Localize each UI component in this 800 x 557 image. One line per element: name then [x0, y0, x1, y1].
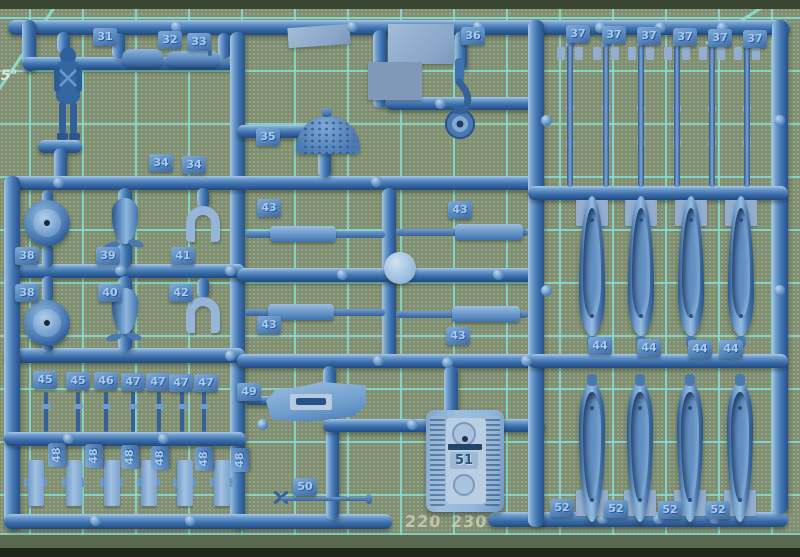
- part-number-tag-37: 37: [708, 29, 732, 47]
- bomb-half-part: [624, 372, 656, 532]
- ejector-pin-mark: [63, 433, 74, 444]
- flat-strip-part: [28, 460, 44, 506]
- ejector-pin-mark: [774, 115, 785, 126]
- wheel-hub-hole: [42, 218, 52, 228]
- locating-pin-hole: [590, 314, 594, 318]
- sprue-runner: [42, 244, 53, 268]
- rod-side-tab: [682, 47, 690, 60]
- part-number-tag-48: 48: [231, 448, 249, 472]
- rod-side-tab: [575, 47, 583, 60]
- part-number-tag-45: 45: [33, 371, 57, 389]
- rod-side-tab: [752, 47, 760, 60]
- part-number-tag-46: 46: [94, 372, 118, 390]
- bar-part: [452, 306, 520, 322]
- part-number-tag-43: 43: [448, 201, 472, 219]
- ejector-pin-mark: [225, 350, 236, 361]
- sprue-runner: [197, 188, 209, 208]
- part-number-tag-47: 47: [194, 374, 218, 392]
- bomb-half-part: [625, 196, 657, 356]
- part-number-tag-52: 52: [706, 501, 730, 519]
- sprue-runner: [4, 176, 544, 190]
- thin-rod-part: [638, 45, 644, 187]
- small-barrel-part: [44, 392, 48, 432]
- ruler-number: 230: [450, 512, 488, 531]
- part-number-tag-37: 37: [673, 28, 697, 46]
- part-number-tag-41: 41: [171, 247, 195, 265]
- part-number-tag-36: 36: [461, 27, 485, 45]
- locating-pin-hole: [739, 314, 743, 318]
- tub-circle-detail: [453, 474, 475, 496]
- thin-rod-part: [744, 45, 750, 187]
- ejector-pin-mark: [53, 177, 64, 188]
- barrel-detail-nub: [102, 404, 111, 409]
- part-number-tag-37: 37: [637, 27, 661, 45]
- ejector-pin-mark: [541, 285, 552, 296]
- ejector-pin-mark: [225, 265, 236, 276]
- ejector-pin-mark: [257, 419, 268, 430]
- part-number-tag-44: 44: [688, 340, 712, 358]
- dome-knob: [322, 108, 332, 117]
- ejector-pin-mark: [435, 98, 446, 109]
- part-number-tag-48: 48: [48, 443, 66, 467]
- locating-pin-hole: [738, 498, 742, 502]
- part-number-tag-52: 52: [604, 500, 628, 518]
- sprue-gate: [587, 374, 597, 386]
- part-number-tag-34: 34: [149, 154, 173, 172]
- ejector-pin-mark: [158, 433, 169, 444]
- ejector-pin-mark: [185, 515, 196, 526]
- part-number-tag-44: 44: [588, 337, 612, 355]
- barrel-detail-nub: [178, 404, 187, 409]
- sprue-runner: [326, 428, 339, 520]
- barrel-detail-nub: [200, 404, 209, 409]
- small-barrel-part: [76, 392, 80, 432]
- part-number-tag-38: 38: [15, 247, 39, 265]
- flat-strip-part: [66, 460, 82, 506]
- part-number-tag-48: 48: [85, 444, 103, 468]
- locating-pin-hole: [689, 218, 693, 222]
- locating-pin-hole: [638, 406, 642, 410]
- ejector-pin-mark: [90, 515, 101, 526]
- sprue-runner: [42, 276, 53, 302]
- standing-figure-part: [50, 46, 86, 142]
- small-barrel-part: [202, 392, 206, 432]
- barrel-detail-nub: [42, 404, 51, 409]
- tub-dot-detail: [462, 436, 468, 442]
- small-barrel-part: [131, 392, 135, 432]
- rod-side-tab: [664, 47, 672, 60]
- rod-side-tab: [717, 47, 725, 60]
- locating-pin-hole: [688, 406, 692, 410]
- part-number-tag-43: 43: [446, 327, 470, 345]
- sprue-runner: [772, 20, 788, 514]
- locating-pin-hole: [688, 498, 692, 502]
- tub-slot-detail: [448, 444, 482, 450]
- part-number-tag-45: 45: [66, 372, 90, 390]
- cockpit-tub-part: 51: [426, 410, 504, 512]
- ejector-pin-mark: [371, 176, 382, 187]
- rod-side-tab: [557, 47, 565, 60]
- part-number-tag-37: 37: [743, 30, 767, 48]
- mat-bottom-edge: [0, 535, 800, 548]
- ejector-pin-mark: [442, 357, 453, 368]
- thin-rod-part: [567, 45, 573, 187]
- barrel-detail-nub: [155, 404, 164, 409]
- locating-pin-hole: [639, 314, 643, 318]
- mat-angle-label: 45°: [0, 68, 17, 84]
- ejector-pin-mark: [115, 265, 126, 276]
- part-number-tag-47: 47: [169, 374, 193, 392]
- seat-dome-part: [296, 116, 360, 154]
- rod-end-nub: [366, 494, 372, 504]
- part-number-tag-43: 43: [257, 316, 281, 334]
- part-number-tag-38: 38: [15, 284, 39, 302]
- part-number-tag-34: 34: [182, 156, 206, 174]
- rod-side-tab: [593, 47, 601, 60]
- tub-circle-detail: [452, 422, 476, 446]
- rod-side-tab: [734, 47, 742, 60]
- ejector-pin-mark: [493, 269, 504, 280]
- ejector-pin-mark: [347, 21, 358, 32]
- part-number-tag-39: 39: [96, 247, 120, 265]
- mat-top-edge: [0, 0, 800, 9]
- sprue-runner: [197, 278, 209, 298]
- sprue-gate: [685, 374, 695, 386]
- part-number-tag-31: 31: [93, 28, 117, 46]
- rod-side-tab: [646, 47, 654, 60]
- hook-pulley-part: [440, 58, 480, 146]
- sprue-runner: [4, 176, 20, 530]
- sprue-runner: [237, 354, 539, 368]
- sprue-runner: [218, 33, 230, 59]
- rod-side-tab: [628, 47, 636, 60]
- locating-pin-hole: [738, 406, 742, 410]
- small-barrel-part: [180, 392, 184, 432]
- barrel-detail-nub: [74, 404, 83, 409]
- photo-model-kit-sprue-on-cutting-mat: 45° 02202302402: [0, 0, 800, 557]
- bar-part: [270, 226, 336, 242]
- part-number-tag-48: 48: [195, 447, 213, 471]
- part-number-tag-50: 50: [293, 478, 317, 496]
- towing-rod-part: [281, 497, 369, 501]
- ejector-pin-mark: [373, 355, 384, 366]
- ejector-pin-mark: [407, 419, 418, 430]
- sprue-gate: [735, 374, 745, 386]
- part-number-tag-47: 47: [121, 373, 145, 391]
- part-number-tag-47: 47: [146, 373, 170, 391]
- round-disc-part: [384, 252, 416, 284]
- part-number-tag-32: 32: [158, 31, 182, 49]
- gun-breech-slot: [296, 398, 326, 405]
- flat-strip-part: [177, 460, 193, 506]
- bomb-half-part: [725, 196, 757, 356]
- small-barrel-part: [157, 392, 161, 432]
- part-number-tag-37: 37: [566, 25, 590, 43]
- horseshoe-clamp-part: [186, 206, 220, 242]
- ejector-pin-mark: [774, 285, 785, 296]
- wheel-part: [24, 300, 70, 346]
- part-number-tag-48: 48: [121, 445, 139, 469]
- part-number-tag-43: 43: [257, 199, 281, 217]
- bomb-half-part: [675, 196, 707, 356]
- locating-pin-hole: [590, 498, 594, 502]
- part-number-tag-44: 44: [637, 339, 661, 357]
- part-number-tag-37: 37: [602, 26, 626, 44]
- flat-strip-part: [104, 460, 120, 506]
- wheel-hub-hole: [42, 318, 52, 328]
- locating-pin-hole: [590, 406, 594, 410]
- ejector-pin-mark: [541, 115, 552, 126]
- ruler-number: 220: [404, 512, 442, 531]
- ejector-pin-mark: [337, 269, 348, 280]
- small-barrel-part: [104, 392, 108, 432]
- horseshoe-clamp-part: [186, 297, 220, 333]
- thin-rod-part: [603, 45, 609, 187]
- mat-bottom-shadow: [0, 548, 800, 557]
- rod-side-tab: [699, 47, 707, 60]
- part-number-tag-48: 48: [151, 446, 169, 470]
- flat-strip-part: [214, 460, 230, 506]
- locating-pin-hole: [638, 498, 642, 502]
- rod-side-tab: [611, 47, 619, 60]
- wheel-part: [24, 200, 70, 246]
- locating-pin-hole: [639, 218, 643, 222]
- part-number-tag-52: 52: [550, 499, 574, 517]
- bar-part: [455, 224, 523, 240]
- sprue-gate: [635, 374, 645, 386]
- barrel-detail-nub: [129, 404, 138, 409]
- flat-panel-part: [368, 62, 422, 100]
- part-number-tag-40: 40: [98, 284, 122, 302]
- locating-pin-hole: [739, 218, 743, 222]
- tub-rib-texture: [430, 416, 445, 506]
- sprue-runner: [4, 432, 246, 446]
- locating-pin-hole: [590, 218, 594, 222]
- part-number-tag-33: 33: [187, 33, 211, 51]
- sprue-runner: [528, 20, 544, 527]
- tub-rib-texture: [485, 416, 500, 506]
- part-number-tag-44: 44: [719, 340, 743, 358]
- thin-rod-part: [709, 45, 715, 187]
- fuel-tank-part: [122, 49, 164, 67]
- part-number-tag-49: 49: [237, 383, 261, 401]
- embossed-part-number: 51: [450, 452, 478, 469]
- bomb-half-part: [576, 196, 608, 356]
- part-number-tag-42: 42: [169, 284, 193, 302]
- thin-rod-part: [674, 45, 680, 187]
- part-number-tag-35: 35: [256, 128, 280, 146]
- part-number-tag-52: 52: [658, 501, 682, 519]
- ejector-pin-mark: [521, 355, 532, 366]
- locating-pin-hole: [689, 314, 693, 318]
